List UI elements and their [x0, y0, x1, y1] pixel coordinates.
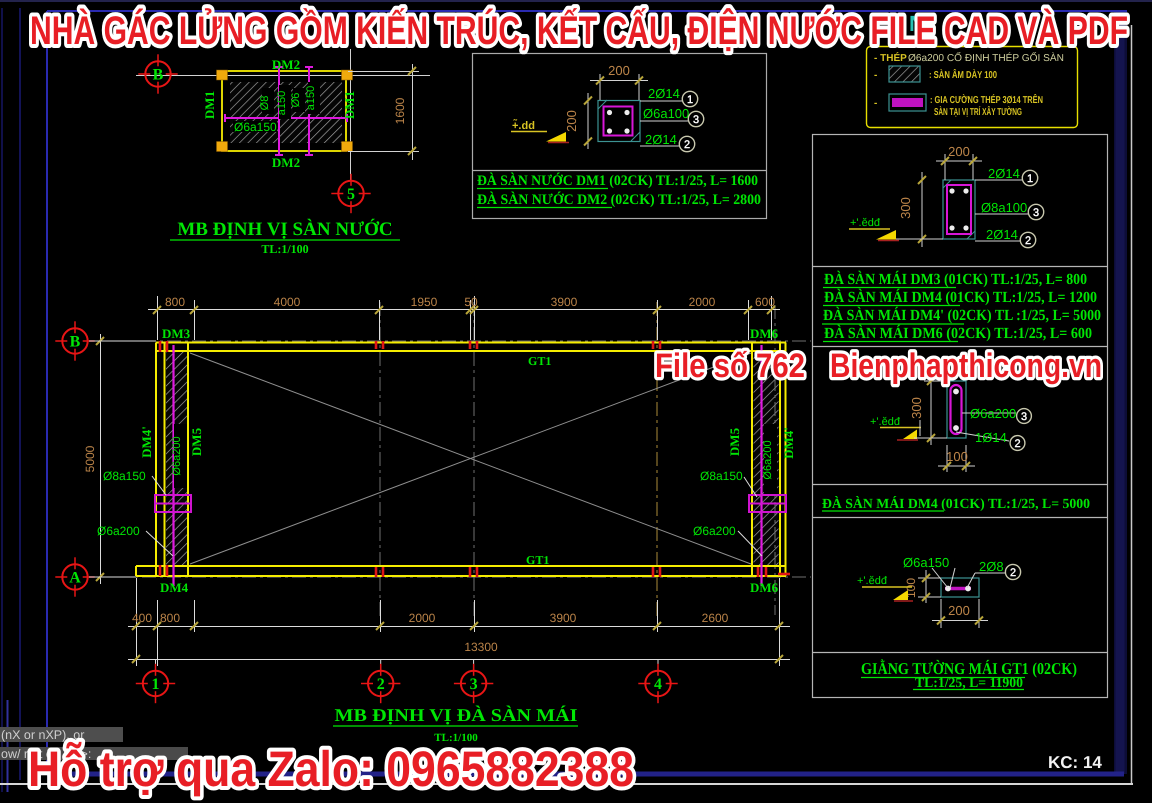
svg-text:Ø6a200: Ø6a200	[171, 436, 183, 475]
svg-text:200: 200	[948, 144, 970, 159]
svg-text:50: 50	[464, 295, 478, 309]
svg-text:ĐÀ SÀN MÁI DM4' (02CK) TL :1/2: ĐÀ SÀN MÁI DM4' (02CK) TL :1/25, L= 5000	[823, 306, 1101, 324]
svg-text:1950: 1950	[411, 295, 438, 309]
svg-text:200: 200	[948, 603, 970, 618]
svg-text:DM1: DM1	[342, 91, 357, 119]
svg-text:2Ø14: 2Ø14	[986, 227, 1018, 242]
svg-text:400: 400	[132, 611, 152, 625]
svg-text:ĐÀ SÀN MÁI DM3 (01CK) TL:1/25,: ĐÀ SÀN MÁI DM3 (01CK) TL:1/25, L= 800	[824, 270, 1087, 288]
svg-text:ĐÀ SÀN MÁI DM6 (02CK) TL:1/25,: ĐÀ SÀN MÁI DM6 (02CK) TL:1/25, L= 600	[824, 324, 1092, 342]
svg-text:200: 200	[608, 63, 630, 78]
svg-text:4: 4	[654, 676, 662, 693]
svg-text:Ø8a100: Ø8a100	[981, 200, 1027, 215]
svg-text:2600: 2600	[702, 611, 729, 625]
svg-text:2: 2	[1025, 235, 1031, 247]
svg-text:1600: 1600	[393, 97, 407, 124]
svg-text:1: 1	[687, 94, 693, 106]
svg-text:-: -	[874, 98, 877, 109]
svg-text:GT1: GT1	[526, 553, 549, 567]
svg-text:(nX or nXP), or: (nX or nXP), or	[1, 728, 84, 742]
svg-text:Ø8a150: Ø8a150	[103, 469, 146, 483]
svg-text:DM4': DM4'	[139, 426, 154, 458]
svg-text:+'.ĕdđ: +'.ĕdđ	[850, 217, 881, 229]
svg-text:800: 800	[165, 295, 185, 309]
svg-text:DM6: DM6	[750, 580, 779, 595]
svg-text:Ø6: Ø6	[290, 93, 302, 108]
svg-text:Ø6a200: Ø6a200	[97, 524, 140, 538]
svg-text:2: 2	[1014, 438, 1020, 450]
svg-text:2Ø8: 2Ø8	[979, 559, 1004, 574]
svg-text:DM4': DM4'	[781, 427, 796, 459]
svg-text:DM6: DM6	[750, 326, 779, 341]
svg-text:Ø6a150: Ø6a150	[903, 555, 949, 570]
svg-text:+'.ĕdđ: +'.ĕdđ	[870, 416, 901, 428]
svg-text:TL:1/25, L= 11900: TL:1/25, L= 11900	[915, 676, 1023, 691]
svg-text:File số 762: File số 762	[655, 347, 805, 385]
svg-text:: GIA CƯỜNG THÉP 3Ø14 TRÊN: : GIA CƯỜNG THÉP 3Ø14 TRÊN	[930, 94, 1043, 106]
svg-text:300: 300	[898, 197, 913, 219]
svg-text:3: 3	[470, 676, 478, 693]
svg-text:Ø6a200: Ø6a200	[762, 440, 774, 479]
svg-text:1: 1	[1027, 173, 1033, 185]
svg-text:+'.ĕdđ: +'.ĕdđ	[857, 575, 888, 587]
svg-text:2Ø14: 2Ø14	[648, 86, 680, 101]
svg-text:Ø8: Ø8	[259, 96, 271, 111]
svg-text:KC: 14: KC: 14	[1048, 753, 1102, 772]
svg-text:Ø6a100: Ø6a100	[643, 106, 689, 121]
svg-text:Bienphapthicong.vn: Bienphapthicong.vn	[830, 347, 1102, 385]
svg-text:3: 3	[1033, 207, 1039, 219]
svg-text:: SÀN ÂM DÀY 100: : SÀN ÂM DÀY 100	[929, 69, 997, 81]
svg-text:MB ĐỊNH VỊ SÀN NƯỚC: MB ĐỊNH VỊ SÀN NƯỚC	[177, 218, 392, 240]
svg-text:a150: a150	[305, 86, 317, 110]
svg-text:100: 100	[946, 449, 968, 464]
svg-text:DM3: DM3	[162, 326, 191, 341]
svg-text:ĐÀ SÀN MÁI DM4 (01CK) TL:1/25,: ĐÀ SÀN MÁI DM4 (01CK) TL:1/25, L= 5000	[822, 495, 1090, 512]
svg-text:2000: 2000	[409, 611, 436, 625]
svg-text:Ø6a150: Ø6a150	[234, 120, 277, 134]
svg-text:DM2: DM2	[272, 57, 300, 72]
svg-text:5: 5	[347, 186, 355, 203]
svg-text:2: 2	[684, 139, 690, 151]
svg-text:1Ø14: 1Ø14	[975, 430, 1007, 445]
svg-text:+̃.dd: +̃.dd	[512, 119, 535, 132]
svg-text:200: 200	[564, 110, 579, 132]
svg-text:3900: 3900	[550, 611, 577, 625]
svg-text:600: 600	[755, 295, 775, 309]
svg-text:DM5: DM5	[727, 427, 742, 456]
svg-text:Hỗ trợ qua Zalo: 0965882388: Hỗ trợ qua Zalo: 0965882388	[28, 741, 634, 797]
svg-text:4000: 4000	[274, 295, 301, 309]
svg-text:A: A	[69, 570, 81, 587]
svg-text:Ø8a150: Ø8a150	[700, 469, 743, 483]
svg-text:DM2: DM2	[272, 155, 300, 170]
svg-text:a150: a150	[276, 91, 288, 115]
svg-text:13300: 13300	[464, 640, 498, 654]
svg-text:- THÉP: - THÉP	[874, 52, 907, 64]
svg-text:ĐÀ SÀN NƯỚC DM1 (02CK) TL:1/25: ĐÀ SÀN NƯỚC DM1 (02CK) TL:1/25, L= 1600	[477, 172, 758, 189]
svg-text:TL:1/100: TL:1/100	[261, 242, 308, 256]
svg-text:3: 3	[1021, 411, 1027, 423]
svg-text:5000: 5000	[83, 445, 97, 472]
svg-text:DM5: DM5	[189, 427, 204, 456]
svg-text:800: 800	[160, 611, 180, 625]
svg-text:DM4: DM4	[160, 580, 189, 595]
svg-text:GT1: GT1	[528, 354, 551, 368]
svg-text:ĐÀ SÀN MÁI DM4 (01CK) TL:1/25,: ĐÀ SÀN MÁI DM4 (01CK) TL:1/25, L= 1200	[824, 288, 1097, 306]
svg-text:300: 300	[909, 397, 924, 419]
svg-text:Ø6a200 CỐ ĐỊNH THÉP GỐI SÀN: Ø6a200 CỐ ĐỊNH THÉP GỐI SÀN	[908, 52, 1064, 64]
svg-text:B: B	[70, 334, 81, 351]
svg-text:2Ø14: 2Ø14	[645, 132, 677, 147]
svg-text:SÀN TẠI VỊ TRÍ XÂY TƯỜNG: SÀN TẠI VỊ TRÍ XÂY TƯỜNG	[934, 106, 1022, 118]
svg-text:3: 3	[693, 114, 699, 126]
svg-text:2: 2	[377, 676, 385, 693]
svg-text:ĐÀ SÀN NƯỚC DM2 (02CK) TL:1/25: ĐÀ SÀN NƯỚC DM2 (02CK) TL:1/25, L= 2800	[477, 191, 761, 208]
svg-text:Ø6a200: Ø6a200	[693, 524, 736, 538]
svg-text:NHÀ GÁC LỬNG GỒM KIẾN TRÚC, KẾ: NHÀ GÁC LỬNG GỒM KIẾN TRÚC, KẾT CẤU, ĐIỆ…	[30, 8, 1128, 53]
svg-text:2000: 2000	[689, 295, 716, 309]
svg-text:DM1: DM1	[202, 91, 217, 119]
svg-text:3900: 3900	[551, 295, 578, 309]
svg-text:2: 2	[1010, 567, 1016, 579]
svg-text:MB ĐỊNH VỊ ĐÀ SÀN MÁI: MB ĐỊNH VỊ ĐÀ SÀN MÁI	[335, 705, 578, 725]
svg-text:-: -	[874, 70, 877, 81]
svg-text:1: 1	[152, 676, 160, 693]
svg-text:Ø6a200: Ø6a200	[970, 406, 1016, 421]
svg-text:B: B	[153, 67, 164, 84]
svg-text:2Ø14: 2Ø14	[988, 166, 1020, 181]
